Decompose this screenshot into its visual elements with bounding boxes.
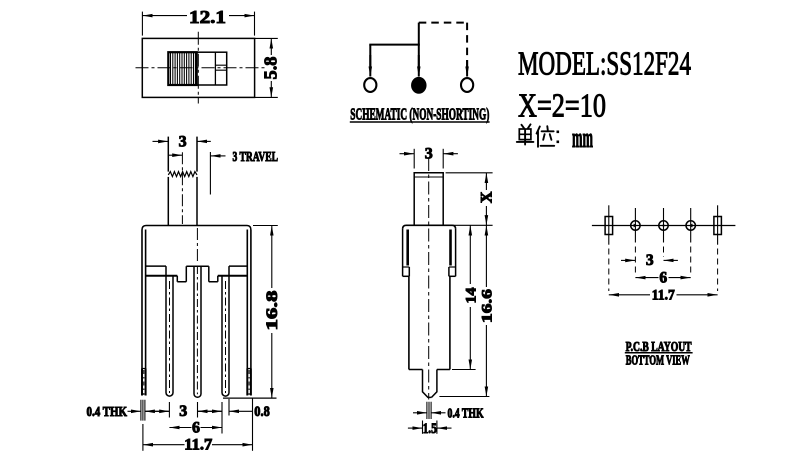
svg-text:mm: mm	[572, 122, 593, 154]
svg-text:3: 3	[425, 146, 433, 163]
svg-text:6: 6	[659, 269, 667, 286]
svg-text:3: 3	[179, 403, 187, 420]
svg-text:0.4 THK: 0.4 THK	[448, 405, 484, 420]
svg-text:11.7: 11.7	[184, 437, 212, 454]
svg-text:14: 14	[463, 287, 479, 304]
svg-text:BOTTOM VIEW: BOTTOM VIEW	[626, 352, 690, 367]
svg-text:3: 3	[646, 252, 654, 269]
svg-text:11.7: 11.7	[652, 288, 675, 304]
svg-text:1.5: 1.5	[423, 421, 437, 437]
svg-text:0.4 THK: 0.4 THK	[87, 404, 128, 419]
svg-text:0.8: 0.8	[254, 404, 269, 420]
svg-text:X=2=10: X=2=10	[518, 88, 606, 125]
svg-text:16.6: 16.6	[480, 288, 496, 323]
svg-text:3 TRAVEL: 3 TRAVEL	[233, 149, 279, 164]
svg-text:16.8: 16.8	[264, 291, 281, 331]
svg-text:MODEL:SS12F24: MODEL:SS12F24	[518, 46, 691, 83]
svg-text:3: 3	[179, 134, 187, 151]
svg-text:6: 6	[192, 419, 200, 436]
svg-text:5.8: 5.8	[261, 57, 281, 80]
svg-text:SCHEMATIC (NON-SHORTING): SCHEMATIC (NON-SHORTING)	[350, 104, 489, 123]
svg-text:X: X	[479, 191, 496, 203]
svg-text:12.1: 12.1	[189, 7, 226, 27]
